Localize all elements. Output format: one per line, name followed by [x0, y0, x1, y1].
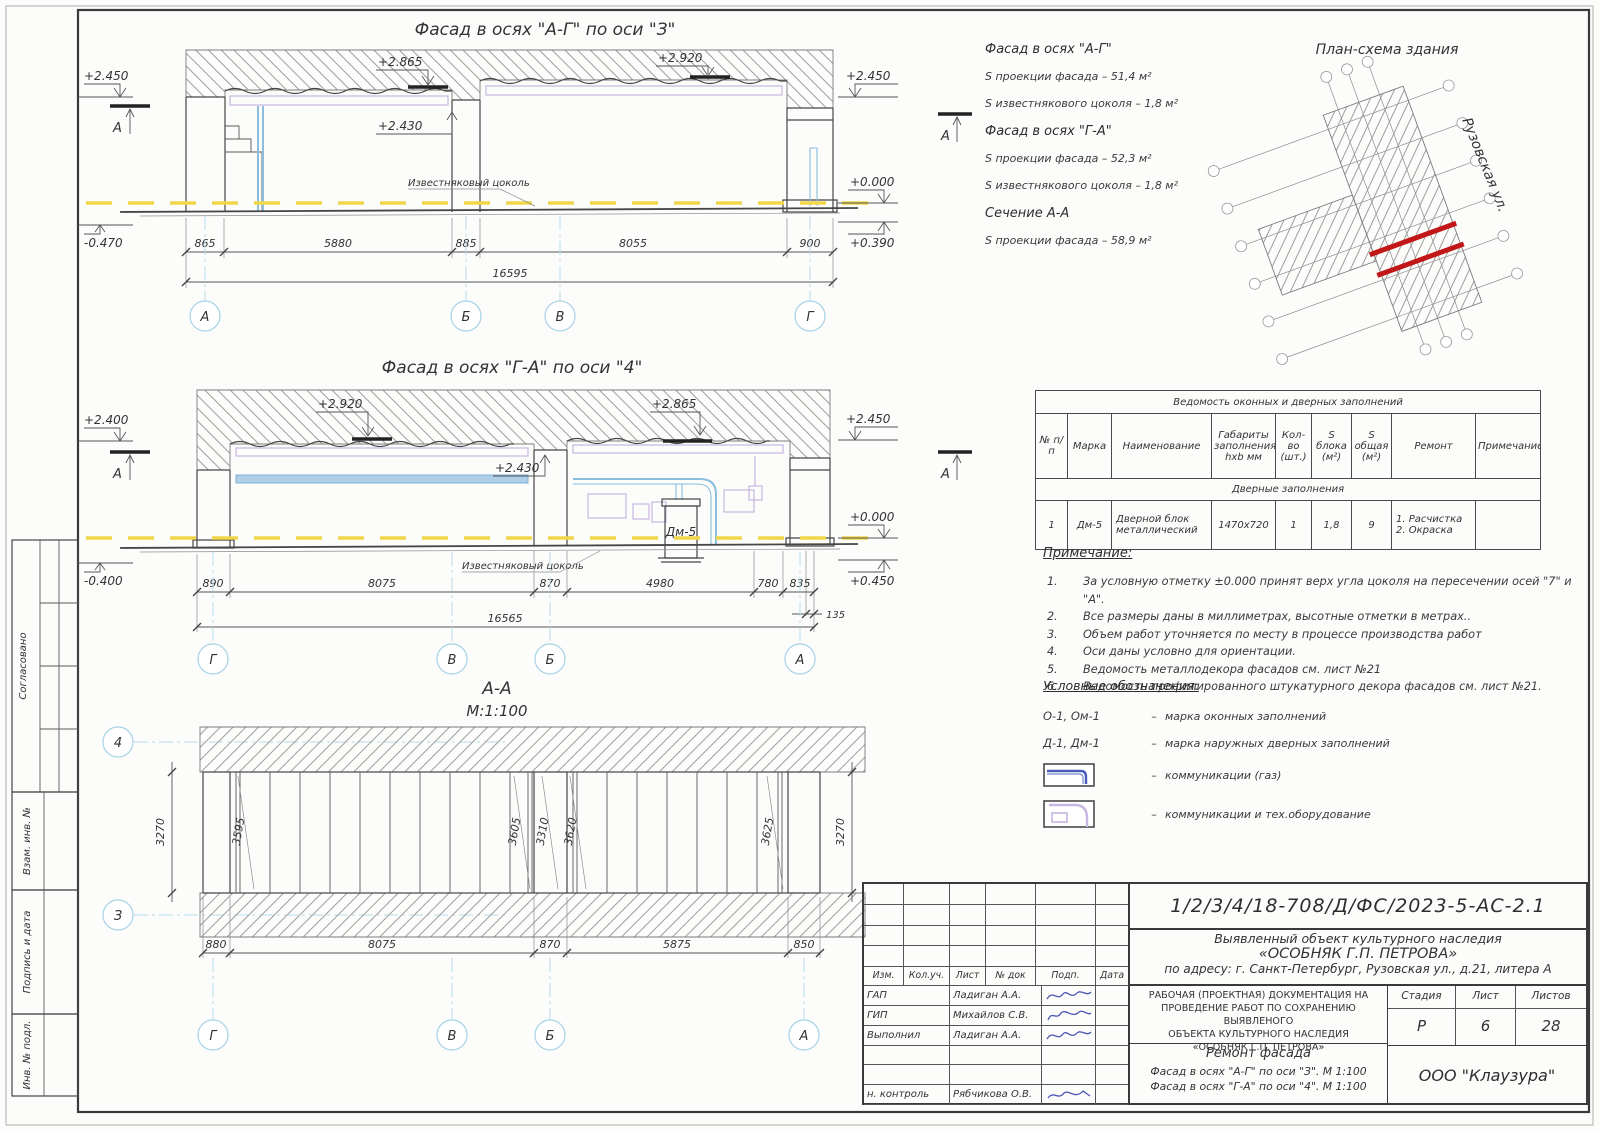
svg-text:-0.470: -0.470	[84, 236, 123, 250]
svg-text:А: А	[940, 467, 950, 482]
level-mark: +2.450	[838, 69, 898, 97]
level-mark: +0.000	[838, 175, 898, 203]
facade-1-title: Фасад в осях "А-Г" по оси "З"	[415, 20, 676, 40]
legend-item: О-1, Ом-1– марка оконных заполнений	[1043, 709, 1483, 723]
signature-rows: ГАПЛадиган А.А. ГИПМихайлов С.В. Выполни…	[864, 986, 1128, 1105]
svg-text:+0.450: +0.450	[850, 574, 895, 588]
svg-text:З: З	[114, 909, 122, 924]
level-mark: +0.000	[838, 510, 898, 538]
svg-text:А: А	[795, 653, 805, 668]
svg-text:16565: 16565	[488, 612, 523, 625]
svg-text:+0.000: +0.000	[850, 175, 895, 189]
sheet-number: 6	[1456, 1009, 1516, 1045]
revision-header-row: Изм.Кол.уч. Лист№ док Подп.Дата	[864, 967, 1128, 986]
sidebar-stamps: Согласовано Взам. инв. № Подпись и дата …	[12, 540, 78, 1096]
legend-item: Д-1, Дм-1– марка наружных дверных заполн…	[1043, 736, 1483, 750]
svg-text:3605: 3605	[506, 816, 524, 846]
window-door-schedule: Ведомость оконных и дверных заполнений №…	[1035, 390, 1541, 550]
plan-schema: План-схема здания Рузовская ул.	[1190, 32, 1538, 404]
section-cut-mark: А	[110, 452, 150, 482]
svg-text:А: А	[799, 1029, 809, 1044]
drawing-sheet: Согласовано Взам. инв. № Подпись и дата …	[0, 0, 1600, 1132]
svg-text:Б: Б	[546, 653, 555, 668]
facade-1-plinth-label: Известняковый цоколь	[408, 178, 530, 189]
svg-text:3595: 3595	[230, 816, 248, 846]
section-cut-mark: А	[938, 114, 972, 144]
notes-title: Примечание:	[1043, 546, 1573, 561]
section-axes: Г В Б А	[198, 958, 819, 1050]
facade-2-drawing: Фасад в осях "Г-А" по оси "4" Дм-5 Извес	[78, 358, 972, 674]
legend-block: Условные обозначения: О-1, Ом-1– марка о…	[1043, 678, 1483, 841]
svg-text:В: В	[448, 653, 457, 668]
sidebar-label-soglasovano: Согласовано	[18, 632, 29, 699]
svg-text:5875: 5875	[663, 938, 691, 951]
section-cut-mark: А	[938, 452, 972, 482]
svg-text:5880: 5880	[324, 237, 352, 250]
svg-text:3270: 3270	[154, 818, 167, 846]
svg-text:А: А	[940, 129, 950, 144]
svg-text:880: 880	[206, 938, 227, 951]
facade-2-plinth-label: Известняковый цоколь	[462, 561, 584, 572]
note-item: 5.Ведомость металлодекора фасадов см. ли…	[1043, 661, 1573, 679]
level-mark: +2.430	[493, 455, 550, 476]
stage-sheet-header: Стадия Лист Листов	[1388, 986, 1586, 1009]
legend-title: Условные обозначения:	[1043, 678, 1483, 693]
svg-text:-0.400: -0.400	[84, 574, 123, 588]
legend-item: – коммуникации и тех.оборудование	[1043, 800, 1483, 828]
note-item: 2.Все размеры даны в миллиметрах, высотн…	[1043, 608, 1573, 626]
section-title: А-А	[481, 679, 511, 699]
level-mark: +0.450	[838, 560, 898, 588]
signature	[1042, 986, 1096, 1006]
svg-text:8075: 8075	[368, 577, 396, 590]
areas-f2-line: S проекции фасада – 52,3 м²	[985, 152, 1235, 165]
svg-text:+2.450: +2.450	[84, 69, 129, 83]
svg-text:А: А	[200, 310, 210, 325]
col-header: Примечание	[1476, 414, 1541, 479]
sidebar-label-podpis: Подпись и дата	[22, 911, 33, 994]
note-item: 1.За условную отметку ±0.000 принят верх…	[1043, 573, 1573, 608]
areas-sec-title: Сечение А-А	[985, 206, 1235, 221]
facade-areas-block: Фасад в осях "А-Г" S проекции фасада – 5…	[985, 42, 1235, 261]
notes-block: Примечание: 1.За условную отметку ±0.000…	[1043, 546, 1573, 696]
svg-text:16595: 16595	[493, 267, 528, 280]
svg-text:780: 780	[758, 577, 779, 590]
company-name: ООО "Клаузура"	[1388, 1046, 1586, 1105]
document-type: РАБОЧАЯ (ПРОЕКТНАЯ) ДОКУМЕНТАЦИЯ НА ПРОВ…	[1130, 986, 1387, 1044]
section-cut-mark: А	[110, 106, 150, 136]
svg-text:А: А	[112, 467, 122, 482]
schedule-title: Ведомость оконных и дверных заполнений	[1036, 391, 1541, 414]
svg-text:850: 850	[794, 938, 815, 951]
note-item: 3.Объем работ уточняется по месту в проц…	[1043, 626, 1573, 644]
areas-f1-line: S проекции фасада – 51,4 м²	[985, 70, 1235, 83]
title-block-right: 1/2/3/4/18-708/Д/ФС/2023-5-АС-2.1 Выявле…	[1130, 884, 1586, 1103]
svg-text:3270: 3270	[834, 818, 847, 846]
col-header: № п/п	[1036, 414, 1068, 479]
plan-title: План-схема здания	[1316, 42, 1459, 58]
svg-text:Б: Б	[462, 310, 471, 325]
areas-f1-title: Фасад в осях "А-Г"	[985, 42, 1235, 57]
col-header: Марка	[1068, 414, 1112, 479]
tech-equipment-icon	[1043, 800, 1143, 828]
level-mark: +2.430	[376, 112, 457, 134]
legend-item: – коммуникации (газ)	[1043, 763, 1483, 787]
note-item: 4.Оси даны условно для ориентации.	[1043, 643, 1573, 661]
sidebar-label-vzam: Взам. инв. №	[22, 807, 33, 875]
schedule-subheader: Дверные заполнения	[1036, 479, 1541, 501]
signature	[1042, 1085, 1096, 1105]
svg-text:+2.450: +2.450	[846, 412, 891, 426]
svg-text:А: А	[112, 121, 122, 136]
svg-text:135: 135	[826, 610, 845, 621]
areas-f2-line: S известнякового цоколя – 1,8 м²	[985, 179, 1235, 192]
svg-text:+2.430: +2.430	[378, 119, 423, 133]
title-block: Изм.Кол.уч. Лист№ док Подп.Дата ГАПЛадиг…	[862, 882, 1588, 1105]
stage-value: Р	[1388, 1009, 1456, 1045]
svg-text:8055: 8055	[619, 237, 647, 250]
level-mark: +2.450	[838, 412, 898, 440]
level-mark: -0.400	[78, 563, 133, 588]
level-mark: +0.390	[838, 222, 898, 250]
areas-sec-line: S проекции фасада – 58,9 м²	[985, 234, 1235, 247]
svg-text:3625: 3625	[759, 816, 777, 846]
svg-text:+2.920: +2.920	[318, 397, 363, 411]
svg-text:В: В	[448, 1029, 457, 1044]
document-number: 1/2/3/4/18-708/Д/ФС/2023-5-АС-2.1	[1130, 884, 1586, 930]
facade-2-title: Фасад в осях "Г-А" по оси "4"	[382, 358, 643, 378]
table-row: 1 Дм-5 Дверной блок металлический 1470x7…	[1036, 501, 1541, 550]
svg-text:4: 4	[114, 736, 122, 751]
gas-pipe-icon	[1043, 763, 1143, 787]
door-dm5: Дм-5	[658, 499, 704, 562]
svg-text:3310: 3310	[534, 816, 552, 846]
col-header: S блока (м²)	[1312, 414, 1352, 479]
svg-text:Б: Б	[546, 1029, 555, 1044]
title-block-left: Изм.Кол.уч. Лист№ док Подп.Дата ГАПЛадиг…	[864, 884, 1130, 1103]
svg-text:+2.400: +2.400	[84, 413, 129, 427]
section-a-a-drawing: А-А М:1:100 4 З 3270 3270 3595 3605 3310…	[103, 679, 865, 1050]
svg-text:870: 870	[540, 938, 561, 951]
level-mark: +2.450	[78, 69, 133, 97]
areas-f2-title: Фасад в осях "Г-А"	[985, 124, 1235, 139]
svg-text:8075: 8075	[368, 938, 396, 951]
signature	[1042, 1026, 1096, 1046]
section-scale: М:1:100	[466, 702, 527, 720]
sheet-content: Ремонт фасада Фасад в осях "А-Г" по оси …	[1130, 1044, 1387, 1094]
svg-text:+2.865: +2.865	[378, 55, 422, 69]
svg-text:+0.000: +0.000	[850, 510, 895, 524]
svg-text:+2.865: +2.865	[652, 397, 696, 411]
svg-text:+2.430: +2.430	[495, 461, 540, 475]
signature	[1042, 1006, 1096, 1026]
svg-text:+2.450: +2.450	[846, 69, 891, 83]
svg-text:4980: 4980	[646, 577, 674, 590]
col-header: S общая (м²)	[1352, 414, 1392, 479]
facade-1-drawing: Фасад в осях "А-Г" по оси "З" Известняко…	[78, 20, 972, 331]
col-header: Ремонт	[1392, 414, 1476, 479]
level-mark: +2.400	[78, 413, 133, 441]
col-header: Габариты заполнения hxb мм	[1212, 414, 1276, 479]
col-header: Наименование	[1112, 414, 1212, 479]
level-mark: -0.470	[78, 225, 133, 250]
stage-sheet-values: Р 6 28	[1388, 1009, 1586, 1046]
facade-1-dimensions: 865 5880 885 8055 900 16595	[182, 218, 837, 288]
sidebar-label-inv: Инв. № подл.	[22, 1021, 33, 1090]
areas-f1-line: S известнякового цоколя – 1,8 м²	[985, 97, 1235, 110]
svg-text:+0.390: +0.390	[850, 236, 895, 250]
col-header: Кол-во (шт.)	[1276, 414, 1312, 479]
object-name: Выявленный объект культурного наследия «…	[1130, 930, 1586, 986]
svg-text:В: В	[556, 310, 565, 325]
sheets-total: 28	[1516, 1009, 1586, 1045]
svg-text:+2.920: +2.920	[658, 51, 703, 65]
